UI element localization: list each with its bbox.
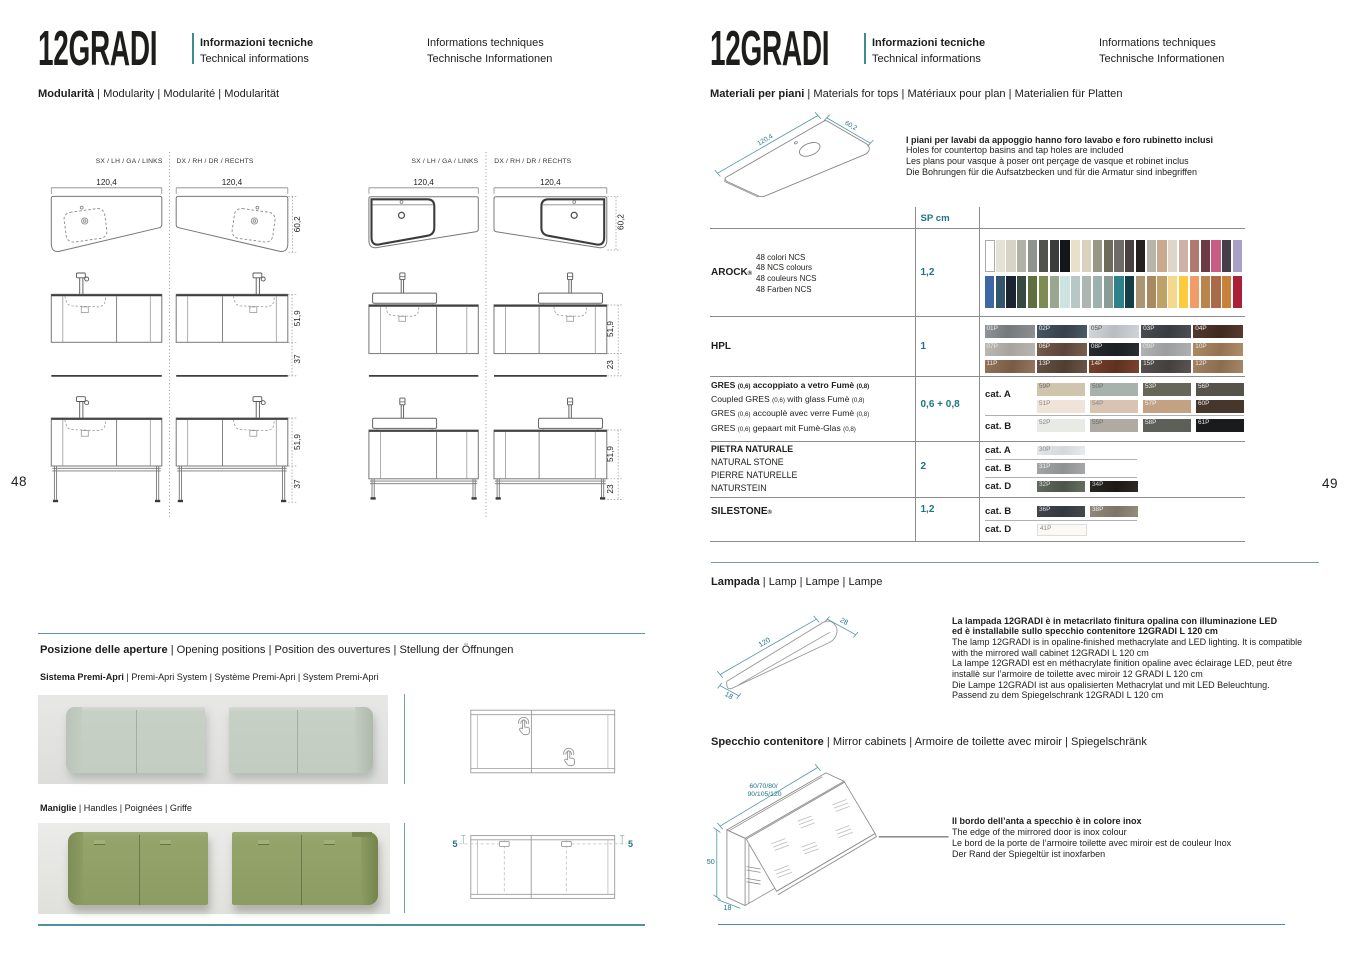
- svg-text:18: 18: [724, 903, 732, 912]
- svg-text:60,2: 60,2: [293, 216, 302, 232]
- svg-text:60,2: 60,2: [617, 214, 626, 230]
- svg-text:120: 120: [757, 635, 772, 649]
- svg-text:5: 5: [452, 839, 457, 849]
- svg-text:120,4: 120,4: [540, 178, 561, 187]
- svg-text:37: 37: [293, 354, 302, 364]
- svg-text:51,9: 51,9: [606, 446, 615, 462]
- svg-text:51,9: 51,9: [293, 310, 302, 326]
- svg-text:60,2: 60,2: [843, 120, 858, 133]
- svg-text:28: 28: [839, 615, 850, 627]
- svg-text:DX / RH / DR / RECHTS: DX / RH / DR / RECHTS: [177, 158, 254, 165]
- svg-text:5: 5: [628, 839, 633, 849]
- svg-text:120,4: 120,4: [413, 178, 434, 187]
- svg-text:51,9: 51,9: [606, 321, 615, 337]
- svg-text:120,4: 120,4: [222, 178, 243, 187]
- svg-text:23: 23: [606, 484, 615, 494]
- svg-text:50: 50: [707, 857, 715, 866]
- svg-text:120,4: 120,4: [96, 178, 117, 187]
- svg-text:37: 37: [293, 479, 302, 489]
- svg-text:23: 23: [606, 360, 615, 370]
- svg-text:120,4: 120,4: [756, 133, 774, 147]
- svg-text:SX / LH / GA / LINKS: SX / LH / GA / LINKS: [411, 158, 478, 165]
- svg-text:DX / RH / DR / RECHTS: DX / RH / DR / RECHTS: [494, 158, 571, 165]
- svg-text:51,9: 51,9: [293, 434, 302, 450]
- svg-text:SX / LH / GA / LINKS: SX / LH / GA / LINKS: [96, 158, 163, 165]
- svg-text:18: 18: [723, 689, 734, 701]
- svg-text:90/105/120: 90/105/120: [747, 791, 781, 798]
- svg-text:60/70/80/: 60/70/80/: [749, 783, 777, 790]
